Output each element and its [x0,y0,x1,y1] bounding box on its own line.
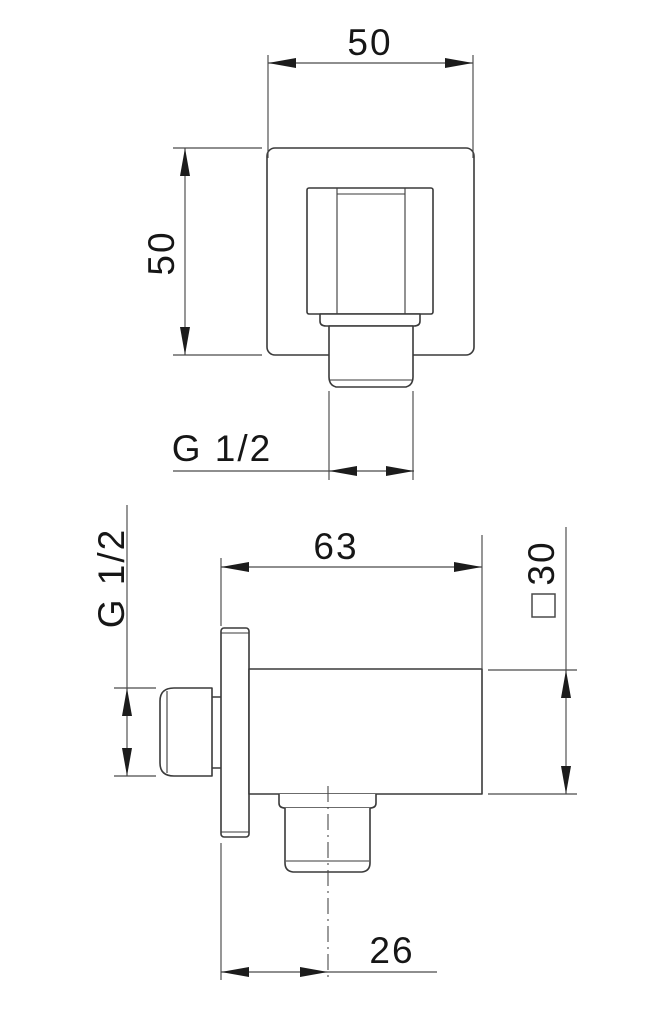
dim-front-width: 50 [268,22,473,158]
dim-front-height: 50 [141,148,262,355]
front-view: 50 50 G 1/2 [141,22,474,480]
inlet-fitting-side [160,688,212,776]
technical-drawing-page: 50 50 G 1/2 [0,0,665,1024]
dim-side-square-value: 30 [521,540,562,585]
wall-plate-side [221,628,249,837]
nut-boss-front [307,188,433,314]
dim-side-depth: 63 [221,526,482,669]
dim-side-depth-value: 63 [313,526,358,567]
side-view-geometry [160,628,482,980]
dim-front-outlet-thread: G 1/2 [172,391,414,480]
square-section-symbol [532,594,555,617]
outlet-spigot-front [329,326,413,387]
front-view-geometry [267,148,474,387]
elbow-body-side [249,669,482,794]
outlet-collar-front [320,314,420,326]
dim-side-inlet-thread: G 1/2 [91,505,156,776]
dim-side-offset-value: 26 [369,930,414,971]
dim-side-square-extension-lines [488,670,577,794]
dim-front-thread-value: G 1/2 [172,428,273,469]
dim-front-thread-extension-lines [329,391,413,480]
dim-front-height-extension-lines [173,148,262,355]
dim-side-inlet-value: G 1/2 [91,528,132,629]
dimensional-drawing-svg: 50 50 G 1/2 [0,0,665,1024]
dim-front-width-value: 50 [347,22,392,63]
dim-side-square: 30 [488,527,577,794]
dim-front-width-extension-lines [268,55,473,158]
dim-side-inlet-extension-lines [114,688,156,776]
inlet-fitting-neck [212,697,221,768]
dim-front-height-value: 50 [141,230,182,275]
side-view: 63 G 1/2 30 26 [91,505,577,980]
